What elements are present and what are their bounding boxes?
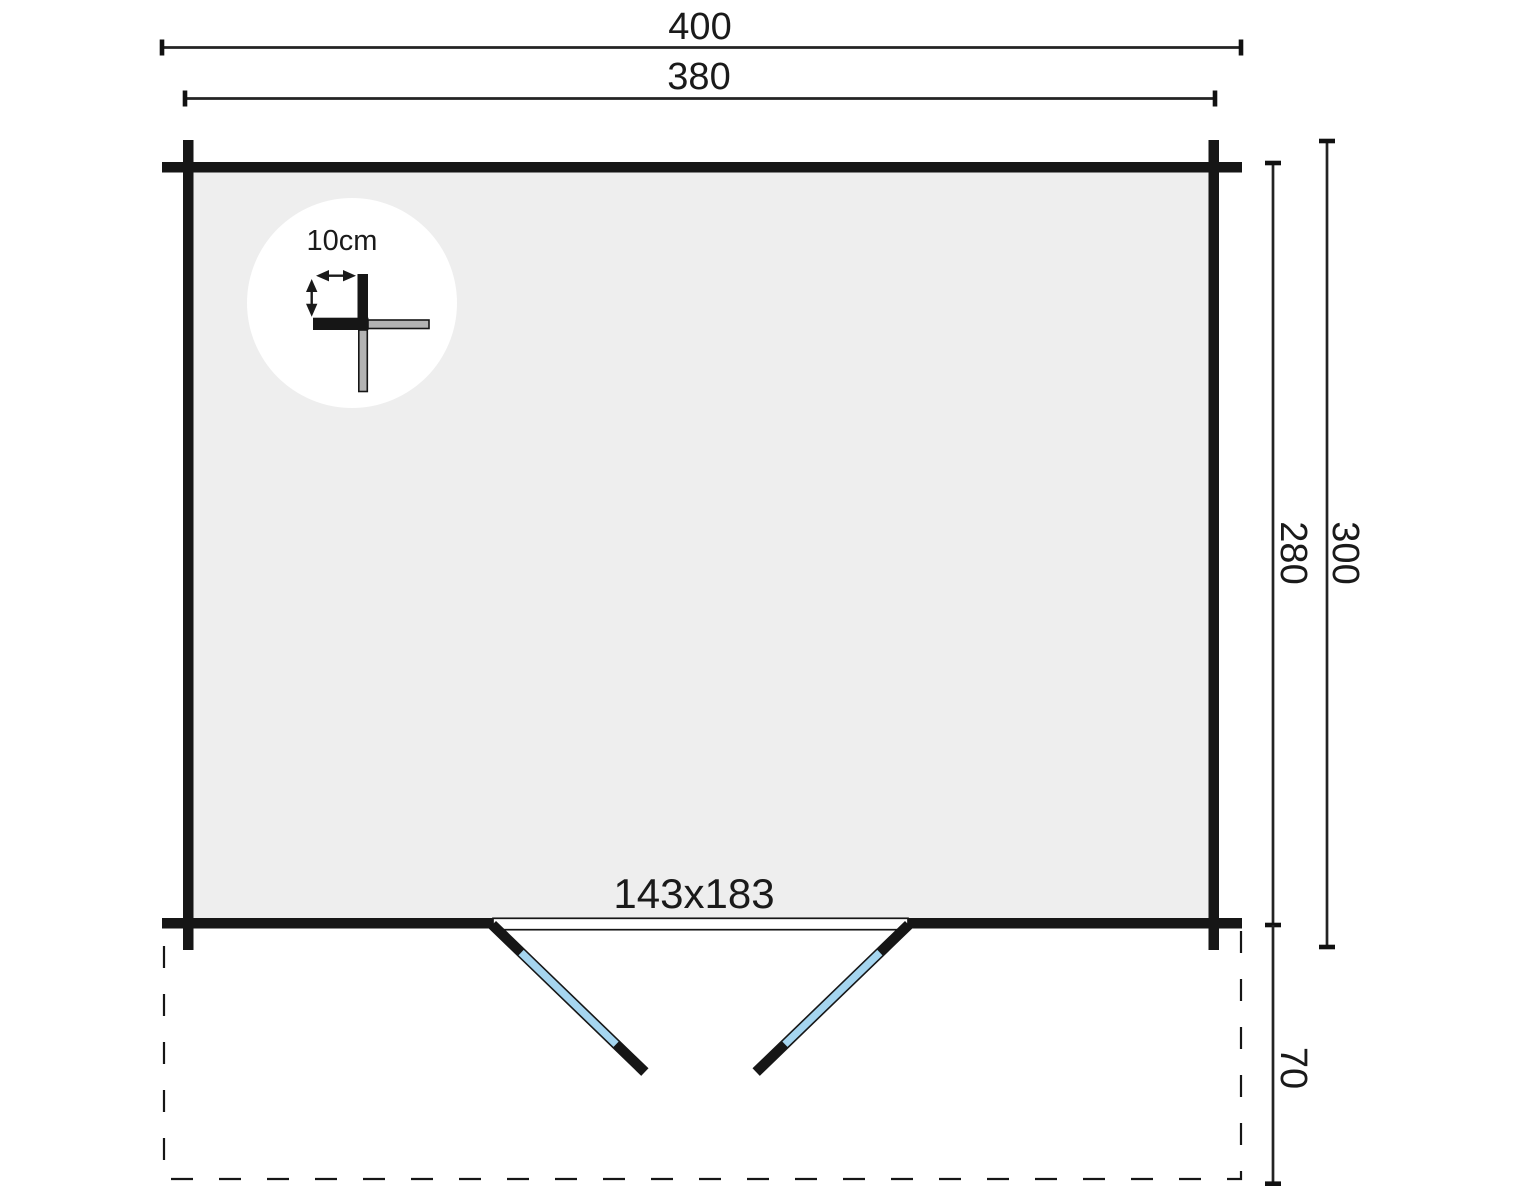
wall-right [1209, 140, 1220, 950]
outer-depth-label: 300 [1324, 521, 1366, 584]
detail-log-vertical-gray [359, 330, 368, 392]
wall-bottom-right-segment [908, 918, 1242, 929]
dimension-inner-width: 380 [183, 56, 1218, 107]
wall-thickness-detail: 10cm [247, 198, 457, 408]
wall-bottom-left-segment [162, 918, 493, 929]
door-leaf-right-glass [782, 950, 882, 1047]
inner-width-label: 380 [667, 56, 730, 98]
door-leaf-right [752, 921, 912, 1076]
dimension-outer-depth: 300 [1319, 139, 1366, 950]
wall-left [183, 140, 194, 950]
detail-log-horizontal-gray [368, 320, 429, 329]
outer-width-tick-left [160, 40, 165, 56]
wall-top [162, 162, 1242, 173]
door-size-label: 143x183 [613, 870, 774, 917]
detail-log-horizontal-dark [313, 318, 369, 330]
inner-depth-tick-top [1265, 161, 1281, 166]
door-leaf-left [489, 921, 649, 1076]
dimension-terrace-depth: 70 [1265, 925, 1314, 1186]
dimension-inner-depth: 280 [1265, 161, 1314, 928]
wall-thickness-label: 10cm [307, 225, 378, 257]
outer-width-label: 400 [668, 6, 731, 48]
door-leaf-left-glass [519, 950, 619, 1047]
outer-depth-tick-bottom [1319, 945, 1335, 950]
inner-width-tick-right [1213, 91, 1218, 107]
floor-plan-drawing: 400 380 10cm [0, 0, 1530, 1188]
outer-width-tick-right [1239, 40, 1244, 56]
inner-depth-label: 280 [1272, 521, 1314, 584]
terrace-depth-label: 70 [1272, 1047, 1314, 1089]
floor-plan-page: 400 380 10cm [0, 0, 1530, 1188]
inner-width-tick-left [183, 91, 188, 107]
terrace-outline [164, 931, 1241, 1179]
outer-depth-tick-top [1319, 139, 1335, 144]
dimension-outer-width: 400 [160, 6, 1244, 56]
terrace-depth-tick-bottom [1265, 1181, 1281, 1186]
door-threshold [493, 918, 908, 929]
